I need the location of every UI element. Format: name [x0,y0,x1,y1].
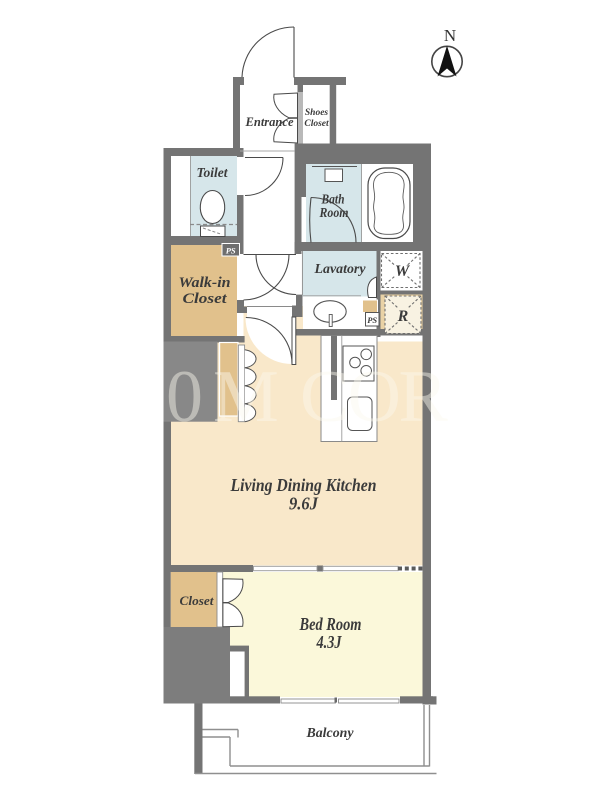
svg-text:M: M [213,356,279,438]
svg-text:Walk-in: Walk-in [179,275,231,291]
svg-text:Living Dining Kitchen: Living Dining Kitchen [230,475,377,495]
svg-text:Bed Room: Bed Room [299,614,362,634]
svg-text:R: R [397,308,409,325]
svg-text:0: 0 [166,356,203,438]
svg-text:Closet: Closet [304,119,329,129]
svg-text:N: N [444,26,456,45]
svg-text:Balcony: Balcony [305,725,354,740]
svg-text:Toilet: Toilet [197,165,229,180]
svg-text:9.6J: 9.6J [289,494,319,514]
svg-text:PS: PS [226,246,236,256]
svg-text:Lavatory: Lavatory [314,262,367,277]
svg-text:4.3J: 4.3J [316,632,343,652]
svg-text:Closet: Closet [180,593,214,608]
svg-text:R: R [399,356,449,438]
svg-text:Entrance: Entrance [245,114,294,129]
svg-text:W: W [395,263,411,280]
svg-text:Closet: Closet [183,291,228,307]
svg-text:O: O [348,356,401,438]
svg-text:Shoes: Shoes [305,108,329,118]
svg-text:Room: Room [319,205,349,220]
svg-text:PS: PS [367,315,377,325]
svg-text:C: C [300,356,349,438]
